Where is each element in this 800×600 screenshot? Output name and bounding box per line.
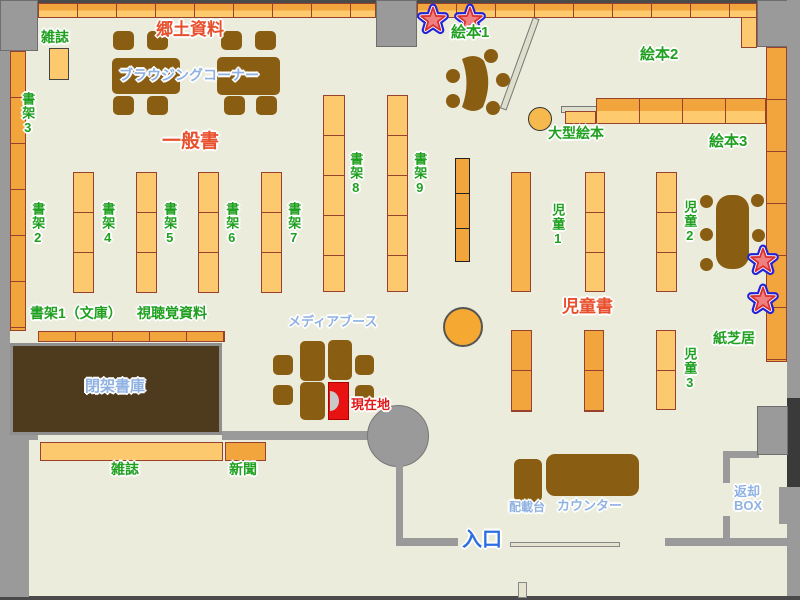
- browsing-chair: [147, 96, 168, 115]
- label-shelf9: 書架9: [412, 152, 426, 196]
- star-icon[interactable]: [416, 3, 450, 37]
- label-return-box: 返却 BOX: [734, 485, 762, 514]
- label-picture-book2: 絵本2: [640, 47, 678, 64]
- label-local-materials: 郷土資料: [156, 21, 224, 40]
- label-closed-stacks: 閉架書庫: [85, 379, 145, 396]
- returnbox-wall-left-upper: [723, 451, 730, 483]
- loading-stand-table: [514, 459, 542, 502]
- label-loading-stand: 配載台: [509, 501, 545, 514]
- label-general-books: 一般書: [162, 132, 219, 153]
- label-large-picture-books: 大型絵本: [548, 126, 604, 141]
- label-shelf5: 書架5: [162, 202, 176, 246]
- entrance-door-line: [510, 542, 620, 547]
- shelf-column-8: [323, 95, 345, 292]
- fan-table: [462, 56, 488, 111]
- right-wall-dark-segment: [787, 398, 800, 487]
- shelf-column-6: [198, 172, 219, 293]
- left-wall-lower-wide: [0, 415, 29, 597]
- stool: [751, 194, 764, 207]
- top-center-wall-block: [376, 0, 417, 47]
- label-children1: 児童1: [550, 203, 564, 247]
- browsing-chair: [113, 31, 134, 50]
- media-booth-seat: [355, 355, 374, 375]
- shelf-column-7: [261, 172, 282, 293]
- media-booth-unit: [328, 340, 352, 380]
- browsing-chair: [224, 96, 245, 115]
- round-reading-table: [443, 307, 483, 347]
- browsing-chair: [255, 31, 276, 50]
- media-booth-unit: [300, 341, 325, 381]
- library-floor-map: 雑誌 郷土資料 ブラウジングコーナー 一般書 書架3 書架2 書架4 書架5 書…: [0, 0, 800, 600]
- shelf-row-ehon: [596, 98, 766, 124]
- stool: [486, 101, 500, 115]
- right-wall-step: [779, 487, 800, 524]
- shelf-thin-column: [455, 158, 470, 262]
- current-location-marker: [328, 382, 349, 420]
- media-booth-seat: [273, 385, 293, 405]
- shelf-top-right-stub: [741, 17, 757, 48]
- label-picture-book3: 絵本3: [709, 134, 747, 151]
- label-shelf4: 書架4: [100, 202, 114, 246]
- shelf-children-lower-2: [584, 330, 604, 412]
- browsing-chair: [256, 96, 277, 115]
- label-shelf8: 書架8: [348, 152, 362, 196]
- label-children2: 児童2: [682, 200, 696, 244]
- round-pillar: [367, 405, 429, 467]
- browsing-chair: [113, 96, 134, 115]
- label-return-box-line2: BOX: [734, 498, 762, 513]
- label-kamishibai: 紙芝居: [713, 331, 755, 346]
- children-table: [716, 195, 749, 269]
- label-newspapers: 新聞: [229, 462, 257, 477]
- label-shelf2: 書架2: [30, 202, 44, 246]
- shelf-children-lower-1: [511, 330, 532, 412]
- label-current-location: 現在地: [351, 398, 390, 412]
- bottom-wall: [0, 596, 800, 600]
- stool: [752, 229, 765, 242]
- shelf-magazines-long: [40, 442, 223, 461]
- returnbox-wall-bottom: [665, 538, 789, 546]
- stool: [700, 258, 713, 271]
- browsing-chair: [221, 31, 242, 50]
- label-audio-visual: 視聴覚資料: [137, 306, 207, 321]
- label-entrance: 入口: [462, 529, 502, 551]
- stool: [700, 195, 713, 208]
- shelf-ehon-row-endblock: [565, 111, 596, 124]
- shelf-column-4: [73, 172, 94, 293]
- label-browsing-corner: ブラウジングコーナー: [119, 68, 259, 83]
- shelf-row-above-stack: [38, 331, 225, 342]
- counter-table: [546, 454, 639, 496]
- stool: [700, 228, 713, 241]
- label-children3: 児童3: [682, 347, 696, 391]
- shelf-children-3: [656, 330, 676, 410]
- shelf-magazines-small: [49, 48, 69, 80]
- label-counter: カウンター: [557, 499, 622, 513]
- media-booth-unit: [300, 382, 325, 420]
- label-shelf7: 書架7: [286, 202, 300, 246]
- label-children-books: 児童書: [562, 298, 613, 317]
- shelf-row-top-left: [38, 3, 376, 18]
- star-icon[interactable]: [746, 283, 780, 317]
- stool: [496, 73, 510, 87]
- stool: [446, 69, 460, 83]
- label-picture-book1: 絵本1: [451, 25, 489, 42]
- current-location-glyph: [330, 391, 339, 411]
- stool: [484, 49, 498, 63]
- media-booth-seat: [273, 355, 293, 375]
- entrance-wall-horizontal: [396, 538, 458, 546]
- label-media-booth: メディアブース: [288, 315, 377, 329]
- stool: [446, 94, 460, 108]
- shelf-newspapers: [225, 442, 266, 461]
- top-left-wall-block: [0, 0, 38, 51]
- entrance-wall-vertical: [396, 463, 403, 543]
- returnbox-corner-block: [757, 406, 788, 455]
- shelf-column-9: [387, 95, 408, 292]
- label-shelf3: 書架3: [20, 92, 34, 136]
- mid-wall-horizontal: [222, 431, 370, 440]
- shelf-children-2a: [585, 172, 605, 292]
- label-shelf6: 書架6: [224, 202, 238, 246]
- label-return-box-line1: 返却: [734, 484, 760, 499]
- label-magazines-top: 雑誌: [41, 30, 69, 45]
- star-icon[interactable]: [746, 244, 780, 278]
- entrance-door-post: [518, 582, 527, 598]
- label-shelf1-bunko: 書架1（文庫）: [30, 306, 122, 321]
- shelf-children-1: [511, 172, 531, 292]
- label-magazines-bottom: 雑誌: [111, 462, 139, 477]
- shelf-column-5: [136, 172, 157, 293]
- fan-table-group: [440, 45, 520, 120]
- shelf-children-2b: [656, 172, 677, 292]
